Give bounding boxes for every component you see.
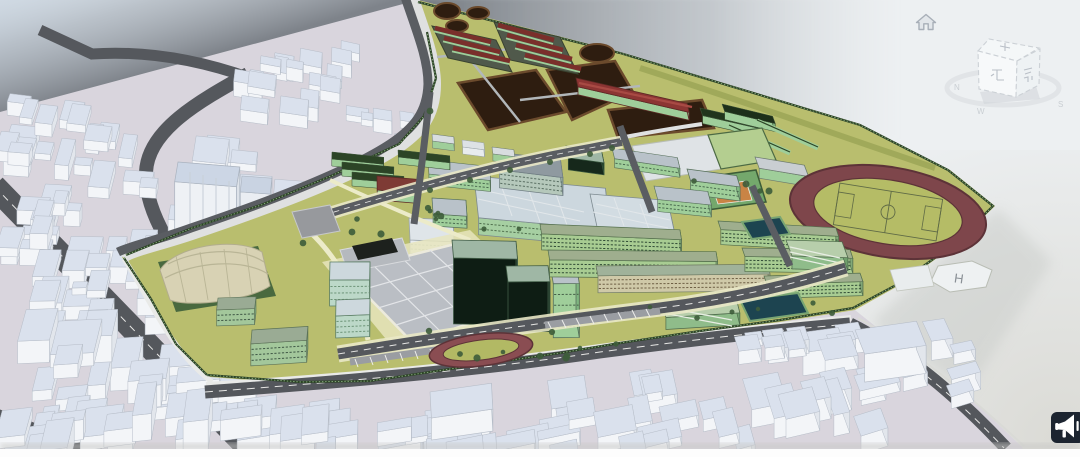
- svg-text:S: S: [1058, 100, 1063, 109]
- svg-text:N: N: [954, 83, 960, 92]
- svg-text:W: W: [977, 107, 985, 116]
